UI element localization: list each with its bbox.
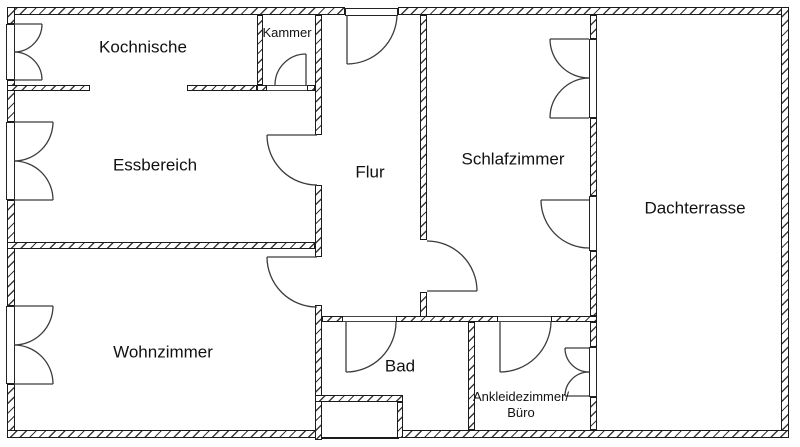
kochnische-window-symbol (14, 24, 42, 80)
room-label-schlafzimmer: Schlafzimmer (462, 148, 565, 169)
schlafzimmer-door-symbol (427, 241, 477, 291)
room-label-essbereich: Essbereich (113, 154, 197, 175)
room-label-wohnzimmer: Wohnzimmer (113, 341, 213, 362)
essbereich-door-symbol (267, 135, 317, 185)
wohnzimmer-door-symbol (267, 257, 317, 307)
schlafzimmer-window-symbol (550, 39, 589, 118)
door-window-symbols-layer (0, 0, 800, 447)
ankleidezimmer-door-symbol (500, 322, 551, 372)
room-label-kochnische: Kochnische (99, 36, 187, 57)
essbereich-window-symbol (14, 122, 53, 200)
floor-plan-canvas: Kochnische Kammer Essbereich Flur Schlaf… (0, 0, 800, 447)
kammer-door-symbol (275, 54, 306, 85)
room-label-dachterrasse: Dachterrasse (644, 197, 745, 218)
balcony-door-symbol (541, 200, 589, 248)
room-label-ankleidezimmer-line1: Ankleidezimmer/ (473, 389, 569, 404)
room-label-ankleidezimmer-line2: Büro (507, 405, 534, 420)
room-label-flur: Flur (355, 161, 384, 182)
entrance-door-symbol (347, 15, 397, 64)
room-label-ankleidezimmer: Ankleidezimmer/ Büro (473, 389, 569, 422)
room-label-bad: Bad (385, 355, 415, 376)
wohnzimmer-window-symbol (14, 306, 53, 384)
room-label-kammer: Kammer (262, 25, 311, 41)
